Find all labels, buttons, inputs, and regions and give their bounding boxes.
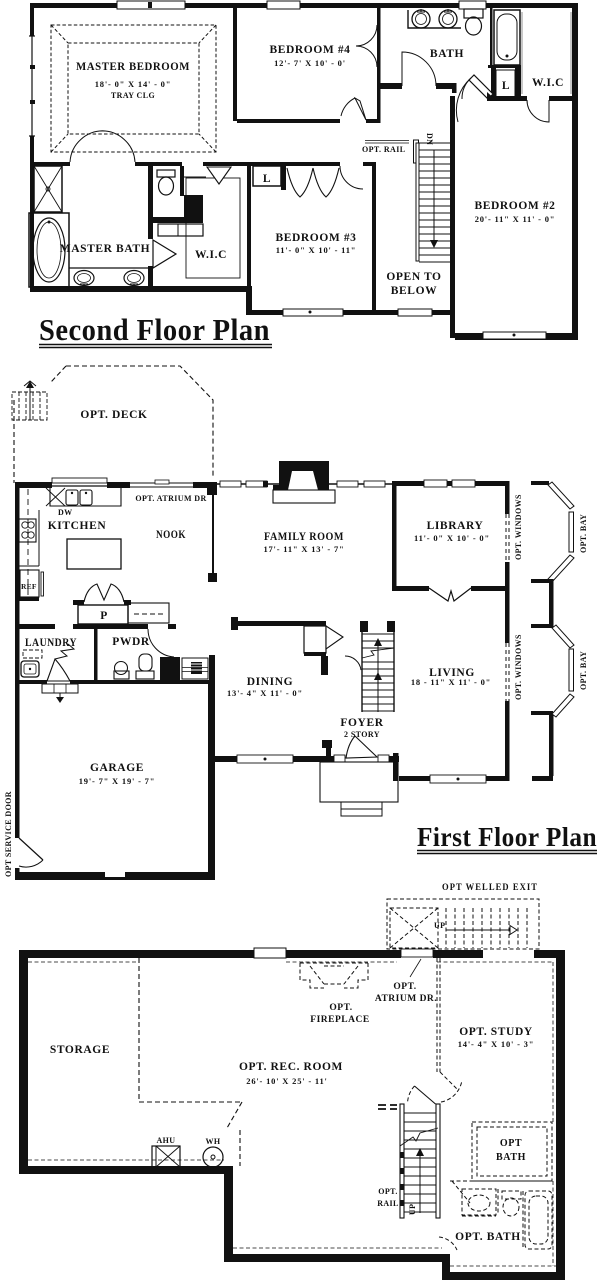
svg-text:BATH: BATH bbox=[496, 1152, 526, 1163]
svg-text:OPT. DECK: OPT. DECK bbox=[80, 409, 147, 421]
svg-text:MASTER BEDROOM: MASTER BEDROOM bbox=[76, 61, 190, 73]
svg-text:BEDROOM #4: BEDROOM #4 bbox=[269, 44, 350, 56]
svg-text:L: L bbox=[263, 173, 271, 185]
svg-text:17'- 11" X 13' - 7": 17'- 11" X 13' - 7" bbox=[263, 544, 344, 554]
svg-text:LIBRARY: LIBRARY bbox=[427, 520, 484, 532]
svg-text:RAIL: RAIL bbox=[377, 1199, 399, 1208]
svg-text:MASTER BATH: MASTER BATH bbox=[60, 243, 150, 255]
svg-text:KITCHEN: KITCHEN bbox=[48, 520, 107, 532]
svg-text:OPT WELLED EXIT: OPT WELLED EXIT bbox=[442, 883, 538, 893]
svg-text:OPT SERVICE DOOR: OPT SERVICE DOOR bbox=[4, 791, 13, 877]
svg-text:DINING: DINING bbox=[247, 676, 293, 688]
svg-text:OPEN TO: OPEN TO bbox=[386, 271, 441, 283]
svg-text:DN: DN bbox=[425, 133, 434, 145]
svg-text:2 STORY: 2 STORY bbox=[344, 730, 380, 739]
svg-text:FOYER: FOYER bbox=[340, 717, 383, 729]
svg-text:BEDROOM #3: BEDROOM #3 bbox=[275, 232, 356, 244]
svg-text:13'- 4" X 11' - 0": 13'- 4" X 11' - 0" bbox=[227, 688, 303, 698]
svg-text:OPT. BATH: OPT. BATH bbox=[455, 1231, 521, 1243]
svg-text:WH: WH bbox=[205, 1137, 220, 1146]
svg-text:BELOW: BELOW bbox=[391, 285, 437, 297]
svg-text:14'- 4" X 10' - 3": 14'- 4" X 10' - 3" bbox=[458, 1039, 535, 1049]
svg-text:NOOK: NOOK bbox=[156, 529, 186, 541]
svg-text:20'- 11" X 11' - 0": 20'- 11" X 11' - 0" bbox=[475, 214, 556, 224]
svg-text:First Floor Plan: First Floor Plan bbox=[417, 822, 597, 852]
svg-text:OPT. RAIL: OPT. RAIL bbox=[362, 145, 405, 154]
svg-text:OPT. STUDY: OPT. STUDY bbox=[459, 1026, 533, 1038]
svg-text:ATRIUM DR.: ATRIUM DR. bbox=[375, 994, 437, 1004]
svg-text:PWDR: PWDR bbox=[112, 636, 150, 648]
svg-text:AHU: AHU bbox=[157, 1136, 176, 1145]
svg-text:18'- 0" X 14' - 0": 18'- 0" X 14' - 0" bbox=[95, 79, 172, 89]
svg-text:OPT.: OPT. bbox=[329, 1003, 352, 1013]
svg-text:UP: UP bbox=[434, 921, 445, 930]
svg-text:OPT. REC. ROOM: OPT. REC. ROOM bbox=[239, 1061, 343, 1073]
svg-text:Second Floor Plan: Second Floor Plan bbox=[39, 312, 270, 347]
svg-text:12'- 7' X 10' - 0': 12'- 7' X 10' - 0' bbox=[274, 58, 346, 68]
svg-text:TRAY CLG: TRAY CLG bbox=[111, 91, 155, 100]
svg-text:UP: UP bbox=[408, 1204, 417, 1215]
svg-text:FIREPLACE: FIREPLACE bbox=[310, 1015, 369, 1025]
svg-text:LAUNDRY: LAUNDRY bbox=[25, 637, 77, 649]
svg-text:OPT. ATRIUM DR: OPT. ATRIUM DR bbox=[135, 494, 206, 503]
svg-text:11'- 0" X 10' - 0": 11'- 0" X 10' - 0" bbox=[414, 533, 490, 543]
svg-text:W.I.C: W.I.C bbox=[195, 249, 227, 261]
svg-text:GARAGE: GARAGE bbox=[90, 762, 144, 774]
svg-text:BEDROOM #2: BEDROOM #2 bbox=[474, 200, 555, 212]
svg-text:OPT. WINDOWS: OPT. WINDOWS bbox=[514, 634, 523, 700]
svg-text:18 - 11" X 11' - 0": 18 - 11" X 11' - 0" bbox=[411, 677, 491, 687]
svg-text:OPT. WINDOWS: OPT. WINDOWS bbox=[514, 494, 523, 560]
svg-text:REF: REF bbox=[21, 582, 37, 591]
svg-text:OPT: OPT bbox=[500, 1138, 522, 1149]
svg-text:26'- 10' X 25' - 11': 26'- 10' X 25' - 11' bbox=[246, 1076, 327, 1086]
svg-text:W.I.C: W.I.C bbox=[532, 77, 564, 89]
svg-text:19'- 7" X 19' - 7": 19'- 7" X 19' - 7" bbox=[79, 776, 156, 786]
svg-text:OPT. BAY: OPT. BAY bbox=[579, 651, 588, 690]
svg-text:11'- 0" X 10' - 11": 11'- 0" X 10' - 11" bbox=[276, 245, 357, 255]
svg-text:FAMILY ROOM: FAMILY ROOM bbox=[264, 531, 344, 543]
svg-text:P: P bbox=[100, 610, 108, 622]
svg-text:STORAGE: STORAGE bbox=[50, 1044, 110, 1056]
svg-text:OPT.: OPT. bbox=[393, 982, 416, 992]
svg-text:DW: DW bbox=[58, 508, 73, 517]
svg-text:OPT.: OPT. bbox=[378, 1187, 397, 1196]
svg-text:OPT. BAY: OPT. BAY bbox=[579, 514, 588, 553]
svg-text:L: L bbox=[502, 80, 510, 92]
svg-text:BATH: BATH bbox=[430, 48, 464, 60]
